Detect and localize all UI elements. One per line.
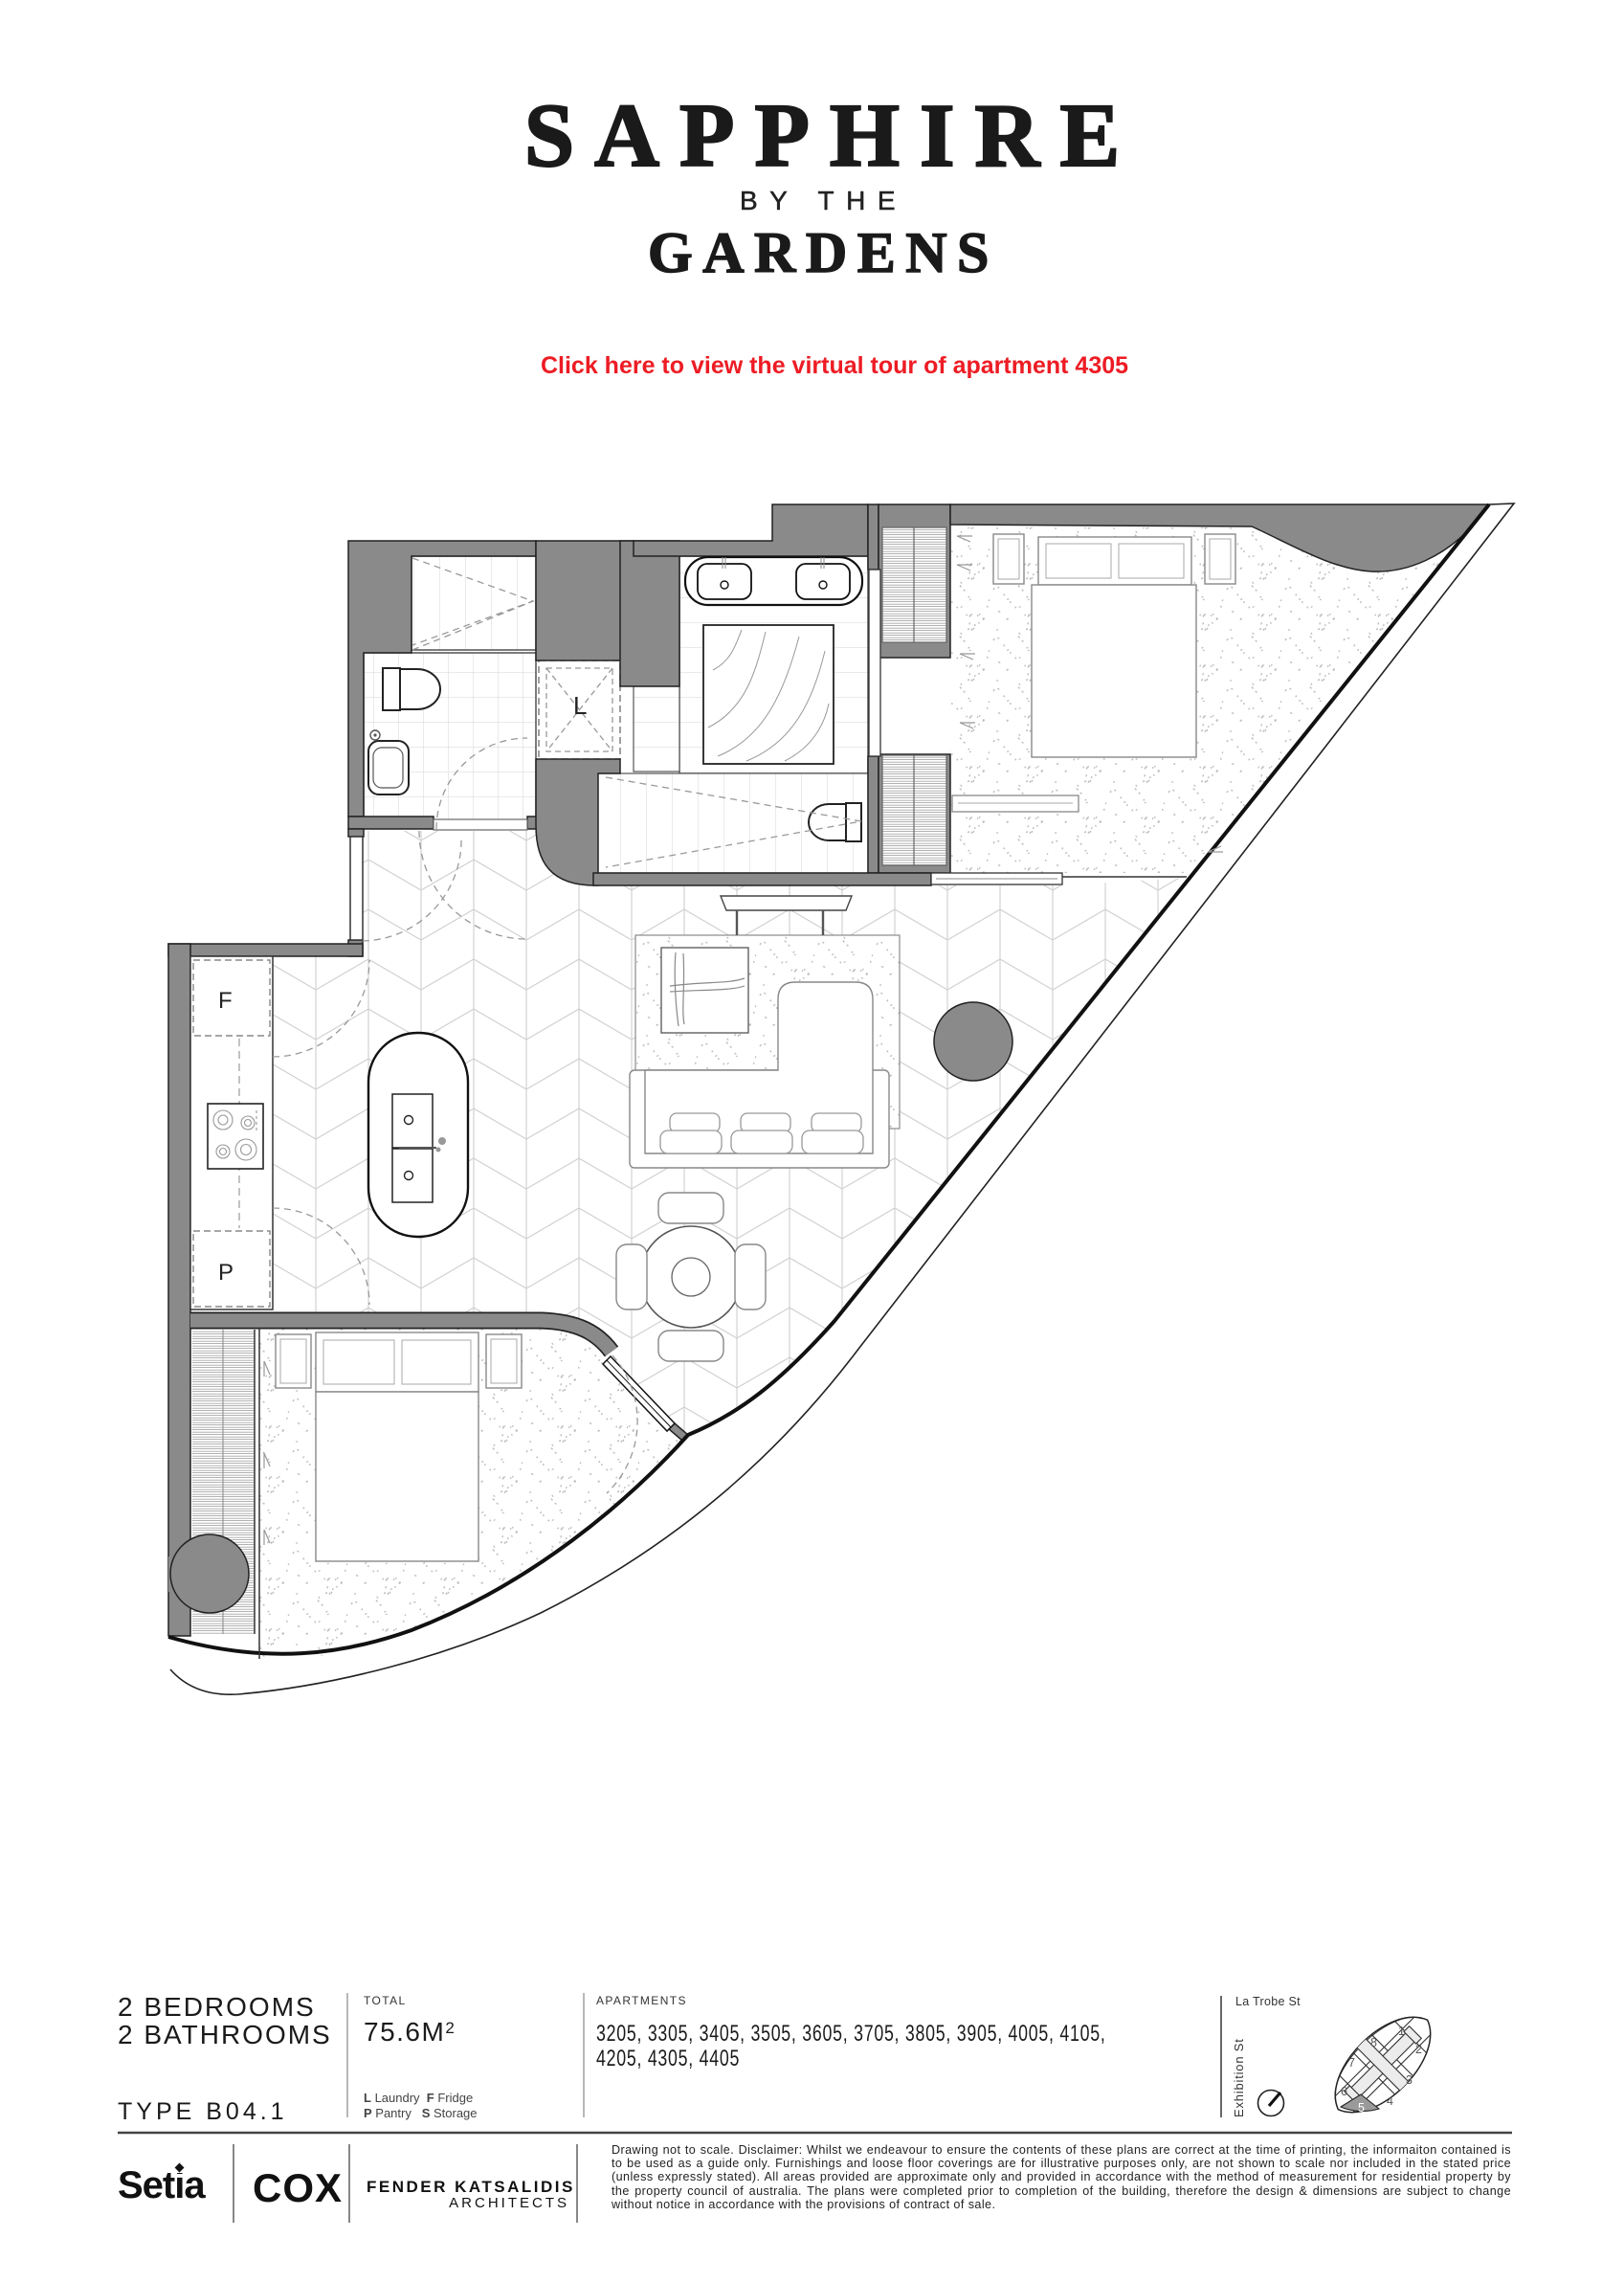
svg-text:5: 5 [1358, 2101, 1365, 2115]
svg-text:F: F [218, 988, 233, 1014]
svg-text:7: 7 [1348, 2056, 1355, 2070]
svg-text:L: L [573, 691, 587, 720]
svg-text:8: 8 [1370, 2036, 1377, 2049]
svg-text:P: P [218, 1260, 234, 1286]
svg-text:1: 1 [1398, 2025, 1405, 2038]
svg-text:3: 3 [1406, 2073, 1413, 2087]
svg-text:4: 4 [1387, 2094, 1393, 2108]
svg-text:2: 2 [1415, 2043, 1422, 2056]
svg-text:6: 6 [1341, 2085, 1347, 2098]
